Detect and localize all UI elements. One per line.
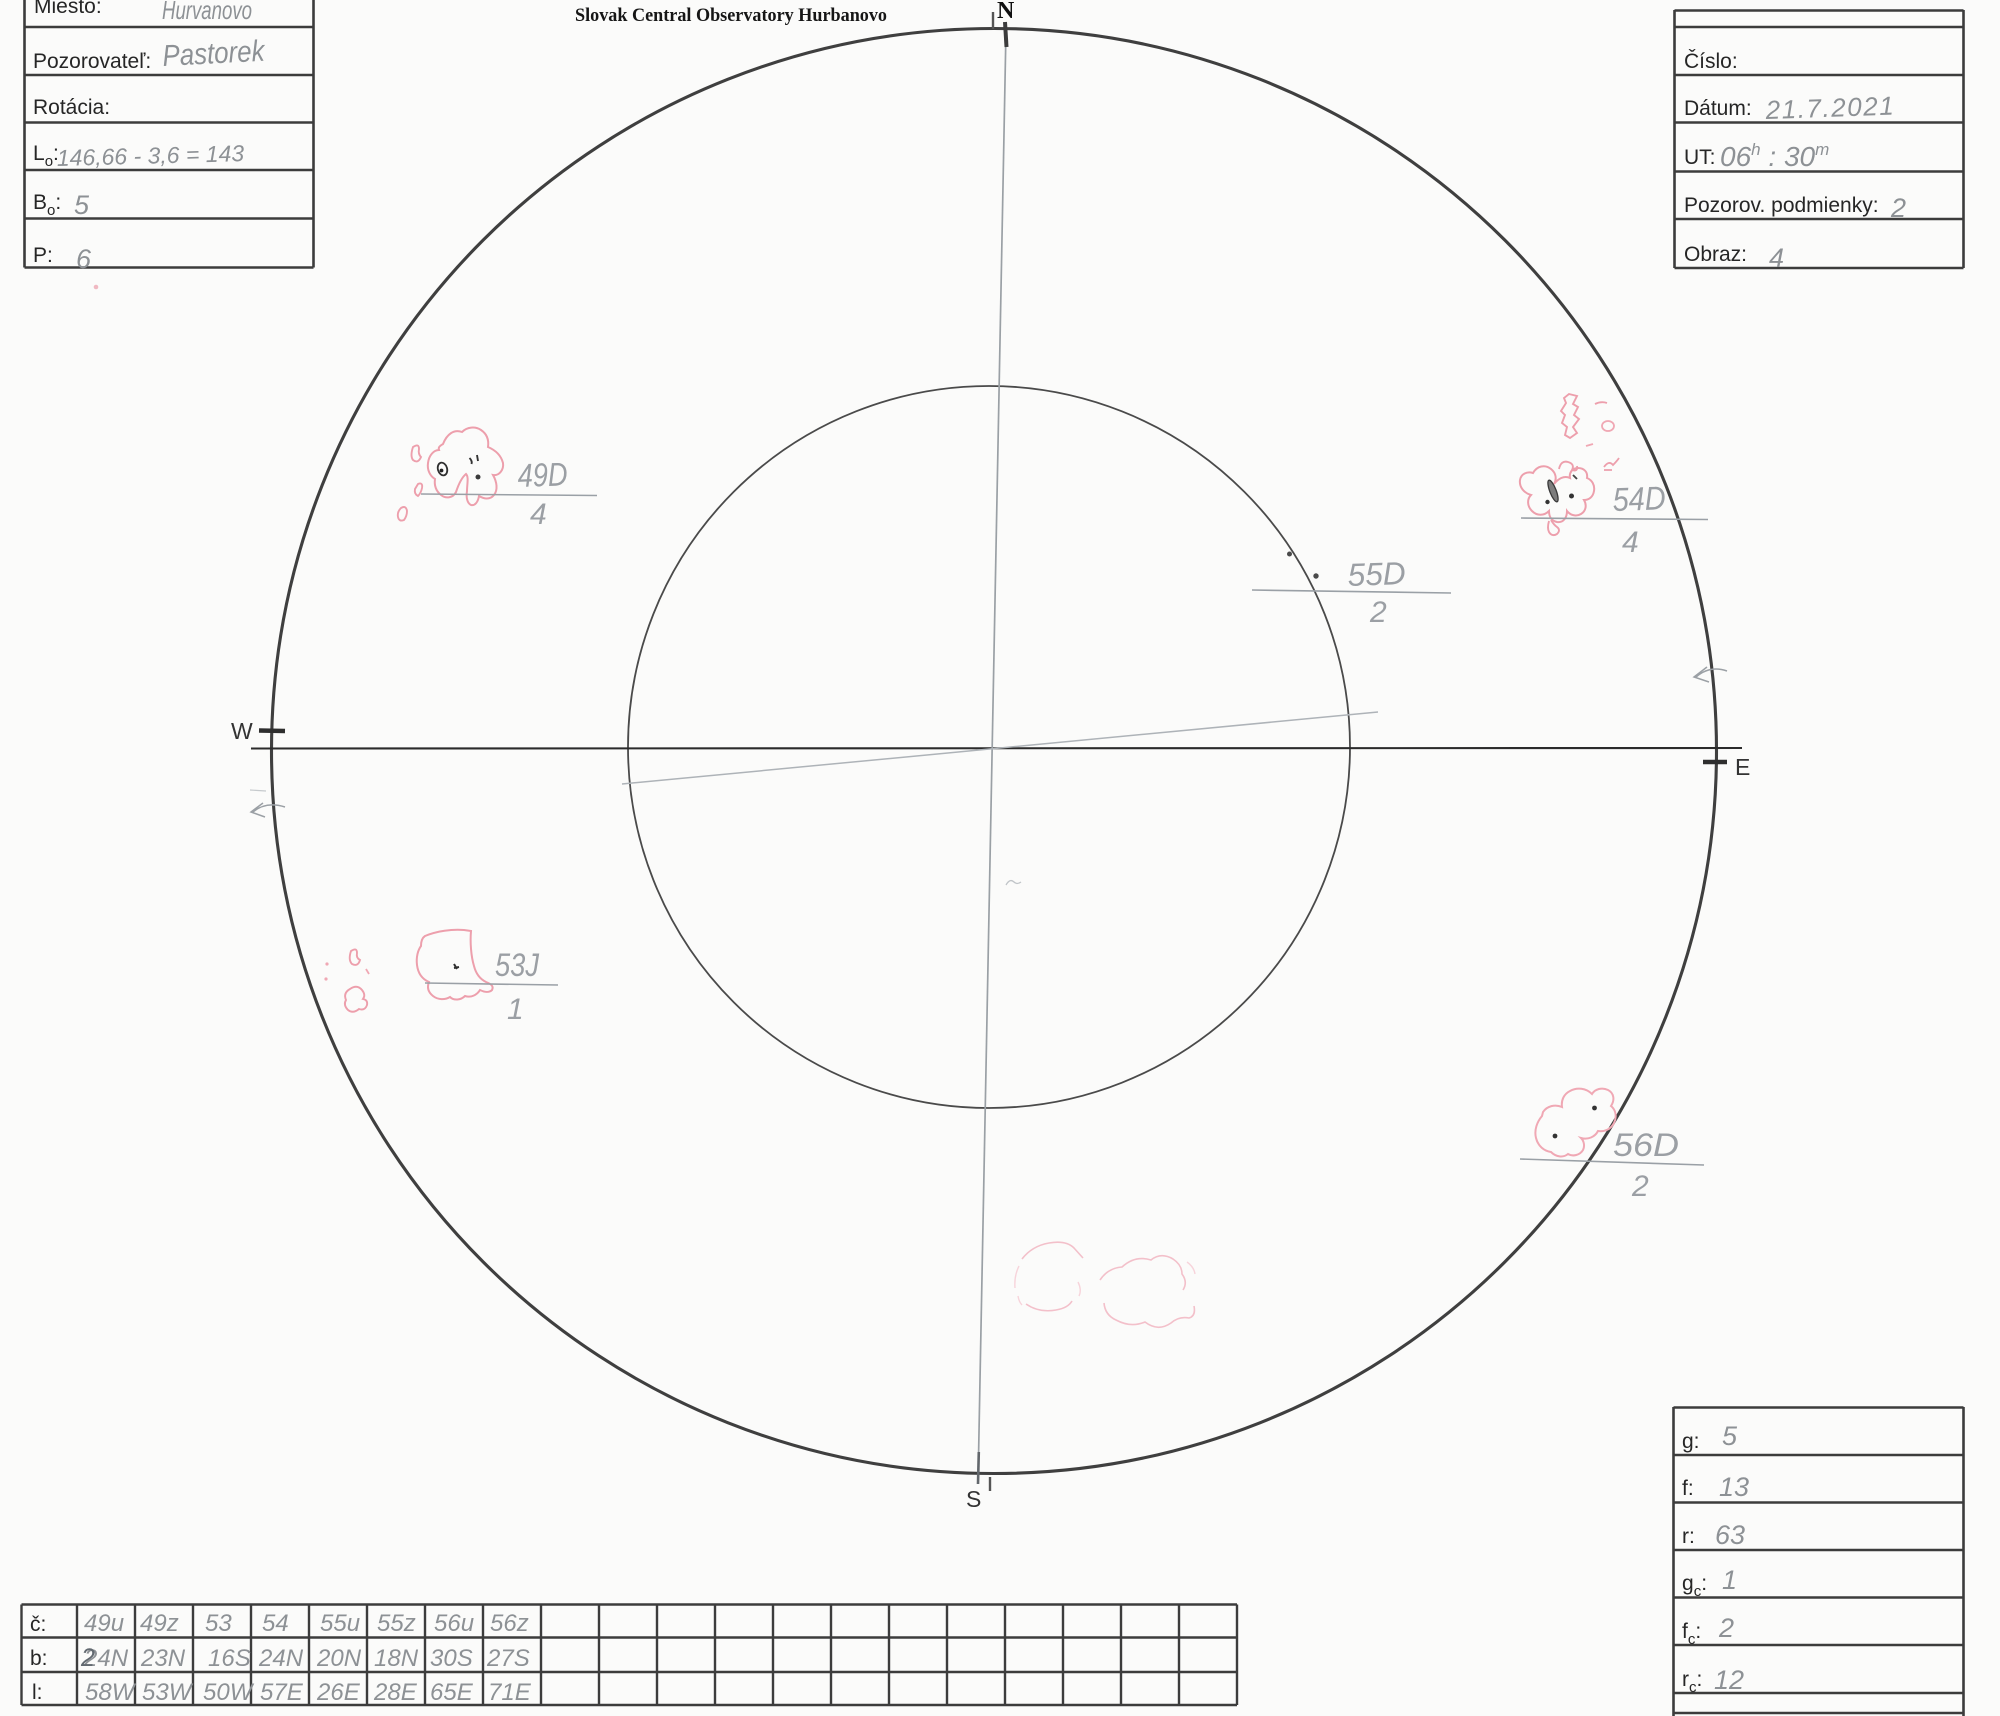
svg-text:1: 1 xyxy=(1722,1565,1737,1595)
svg-text:28E: 28E xyxy=(373,1679,418,1706)
svg-text:4: 4 xyxy=(530,498,547,531)
svg-text:56u: 56u xyxy=(434,1610,474,1637)
svg-text:N: N xyxy=(997,0,1015,24)
svg-text:E: E xyxy=(1735,754,1750,780)
svg-text:55D: 55D xyxy=(1347,555,1406,593)
svg-text:4: 4 xyxy=(1769,243,1784,273)
svg-text:49D: 49D xyxy=(517,455,568,494)
svg-text:4: 4 xyxy=(1622,526,1639,559)
svg-text:54D: 54D xyxy=(1612,479,1666,518)
svg-text:23N: 23N xyxy=(140,1645,186,1672)
svg-text:P:: P: xyxy=(33,244,53,267)
svg-text:Rotácia:: Rotácia: xyxy=(33,96,110,119)
svg-text:27S: 27S xyxy=(486,1645,530,1672)
svg-text:06h : 30m: 06h : 30m xyxy=(1720,140,1829,172)
svg-text:58W: 58W xyxy=(85,1679,137,1706)
svg-text:26E: 26E xyxy=(316,1679,361,1706)
svg-text:2: 2 xyxy=(1369,596,1387,629)
svg-text:Obraz:: Obraz: xyxy=(1684,243,1747,266)
svg-text:Číslo:: Číslo: xyxy=(1684,50,1738,73)
svg-text:50W: 50W xyxy=(203,1679,255,1706)
svg-text:Miesto:: Miesto: xyxy=(34,0,102,18)
svg-text:54: 54 xyxy=(262,1610,289,1637)
svg-text:56D: 56D xyxy=(1613,1127,1679,1163)
svg-text:53J: 53J xyxy=(495,947,540,983)
svg-text:W: W xyxy=(231,718,253,744)
svg-text:13: 13 xyxy=(1719,1472,1749,1502)
svg-text:g:: g: xyxy=(1682,1430,1700,1453)
svg-text:55u: 55u xyxy=(320,1610,360,1637)
svg-text:UT:: UT: xyxy=(1684,146,1716,169)
svg-text:16S: 16S xyxy=(208,1645,251,1672)
svg-text:2: 2 xyxy=(80,1644,95,1672)
svg-text:65E: 65E xyxy=(430,1679,474,1706)
svg-text:12: 12 xyxy=(1714,1665,1744,1695)
svg-text:Pozorov. podmienky:: Pozorov. podmienky: xyxy=(1684,194,1879,217)
svg-text:56z: 56z xyxy=(490,1610,529,1637)
svg-text:71E: 71E xyxy=(488,1679,532,1706)
svg-text:18N: 18N xyxy=(374,1645,419,1672)
svg-text:l:: l: xyxy=(32,1681,43,1704)
svg-text:30S: 30S xyxy=(430,1645,473,1672)
svg-text:21.7.2021: 21.7.2021 xyxy=(1764,91,1894,125)
svg-text:1: 1 xyxy=(507,993,524,1026)
svg-text:53W: 53W xyxy=(142,1679,194,1706)
svg-text:2: 2 xyxy=(1631,1170,1649,1203)
svg-text:20N: 20N xyxy=(316,1645,362,1672)
svg-text:6: 6 xyxy=(76,244,92,274)
svg-text:24N: 24N xyxy=(258,1645,304,1672)
svg-text:53: 53 xyxy=(205,1610,232,1637)
svg-text:Pozorovateľ:: Pozorovateľ: xyxy=(33,50,151,73)
svg-text:Hurvanovo: Hurvanovo xyxy=(162,0,252,25)
svg-text:49u: 49u xyxy=(84,1610,124,1637)
svg-text:57E: 57E xyxy=(260,1679,304,1706)
svg-text:Dátum:: Dátum: xyxy=(1684,97,1752,120)
svg-text:5: 5 xyxy=(1722,1421,1738,1451)
svg-text:r:: r: xyxy=(1682,1525,1695,1548)
svg-text:5: 5 xyxy=(74,190,90,220)
svg-text:55z: 55z xyxy=(377,1610,416,1637)
svg-text:Slovak Central Observatory Hur: Slovak Central Observatory Hurbanovo xyxy=(575,5,887,26)
svg-text:49z: 49z xyxy=(140,1610,179,1637)
svg-text:b:: b: xyxy=(30,1647,48,1670)
svg-text:63: 63 xyxy=(1715,1520,1745,1550)
svg-text:2: 2 xyxy=(1890,193,1906,223)
svg-text:č:: č: xyxy=(30,1613,46,1636)
svg-text:f:: f: xyxy=(1682,1477,1694,1500)
svg-text:S: S xyxy=(966,1486,981,1512)
svg-text:146,66 - 3,6 = 143: 146,66 - 3,6 = 143 xyxy=(56,140,244,171)
svg-text:Pastorek: Pastorek xyxy=(162,35,267,73)
svg-text:2: 2 xyxy=(1718,1613,1734,1643)
